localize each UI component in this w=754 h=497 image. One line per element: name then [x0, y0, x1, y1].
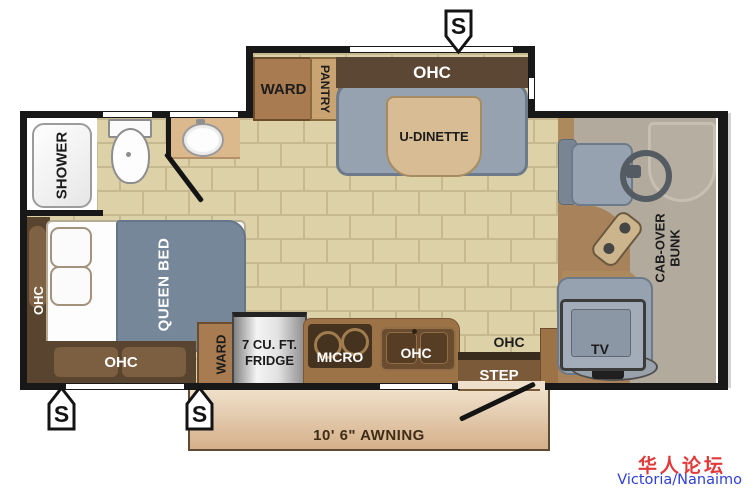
- dinette-table-label: U-DINETTE: [399, 129, 468, 144]
- speaker-marker-bed: S: [47, 386, 76, 431]
- speaker-letter: S: [451, 13, 466, 39]
- cab-over-bunk-label: CAB-OVER BUNK: [653, 213, 683, 282]
- ohc-dinette-label: OHC: [413, 63, 451, 83]
- ohc-foot-label: OHC: [104, 354, 137, 371]
- awning: 10' 6" AWNING: [188, 387, 550, 451]
- shower-wall: [27, 210, 103, 216]
- speaker-letter: S: [54, 401, 69, 427]
- speaker-marker-top: S: [444, 9, 473, 54]
- speaker-letter: S: [192, 401, 207, 427]
- queen-bed-labelbox: QUEEN BED: [146, 222, 182, 346]
- wall-top-right: [528, 111, 728, 118]
- ohc-foot-labelbox: OHC: [46, 341, 196, 383]
- window-bath-toilet: [103, 112, 152, 117]
- bunk-label-line2: BUNK: [668, 213, 683, 282]
- entry-ohc-labelbox: OHC: [480, 333, 538, 350]
- sink-ohc-labelbox: OHC: [380, 342, 452, 364]
- wardrobe-dinette: WARD: [253, 57, 314, 121]
- sink-faucet: [412, 329, 417, 334]
- micro-label: MICRO: [317, 349, 364, 365]
- bathroom-faucet: [196, 119, 205, 124]
- toilet-flush: [126, 152, 131, 157]
- ohc-side-label: OHC: [31, 286, 46, 315]
- watermark-line2: Victoria/Nanaimo: [617, 472, 742, 488]
- wall-left: [20, 111, 27, 390]
- entry-ohc-label: OHC: [493, 334, 524, 350]
- floor-plan: 10' 6" AWNING SHOWER OHC QUEEN BED OHC W…: [0, 0, 754, 497]
- steering-hub: [626, 165, 641, 178]
- queen-bed-label: QUEEN BED: [156, 237, 173, 331]
- fridge-label-line1: 7 CU. FT.: [242, 337, 297, 353]
- wardrobe-bedroom-label: WARD: [213, 335, 228, 375]
- wall-right-outline: [728, 113, 731, 388]
- wall-bump-left: [246, 46, 253, 118]
- fridge-label-line2: FRIDGE: [245, 353, 294, 369]
- window-kitchen: [380, 384, 452, 389]
- sink-ohc-label: OHC: [400, 345, 431, 361]
- tv-label: TV: [591, 341, 609, 357]
- bathroom-sink: [182, 123, 224, 157]
- micro-labelbox: MICRO: [308, 347, 372, 367]
- wall-bottom-right: [545, 383, 728, 390]
- pillow: [50, 227, 92, 268]
- shower: SHOWER: [27, 118, 97, 213]
- ladder-hole: [601, 241, 616, 256]
- bathroom-wall-stub: [166, 118, 171, 156]
- dinette-table: U-DINETTE: [386, 96, 482, 177]
- window-bath-sink: [170, 112, 238, 117]
- shower-pan: SHOWER: [32, 123, 92, 208]
- pillow: [50, 266, 92, 306]
- shower-label: SHOWER: [54, 132, 71, 200]
- tv-labelbox: TV: [560, 337, 640, 361]
- pantry-label: PANTRY: [318, 65, 332, 113]
- wall-right: [718, 111, 728, 390]
- window-dinette: [350, 47, 513, 52]
- wardrobe-dinette-label: WARD: [261, 81, 307, 98]
- refrigerator: 7 CU. FT. FRIDGE: [232, 312, 307, 390]
- window-bed: [66, 384, 184, 389]
- speaker-marker-center: S: [185, 386, 214, 431]
- awning-label: 10' 6" AWNING: [313, 427, 425, 449]
- window-dinette-side: [529, 78, 534, 99]
- ohc-cabinet-dinette: OHC: [336, 57, 528, 88]
- bunk-label-line1: CAB-OVER: [653, 213, 668, 282]
